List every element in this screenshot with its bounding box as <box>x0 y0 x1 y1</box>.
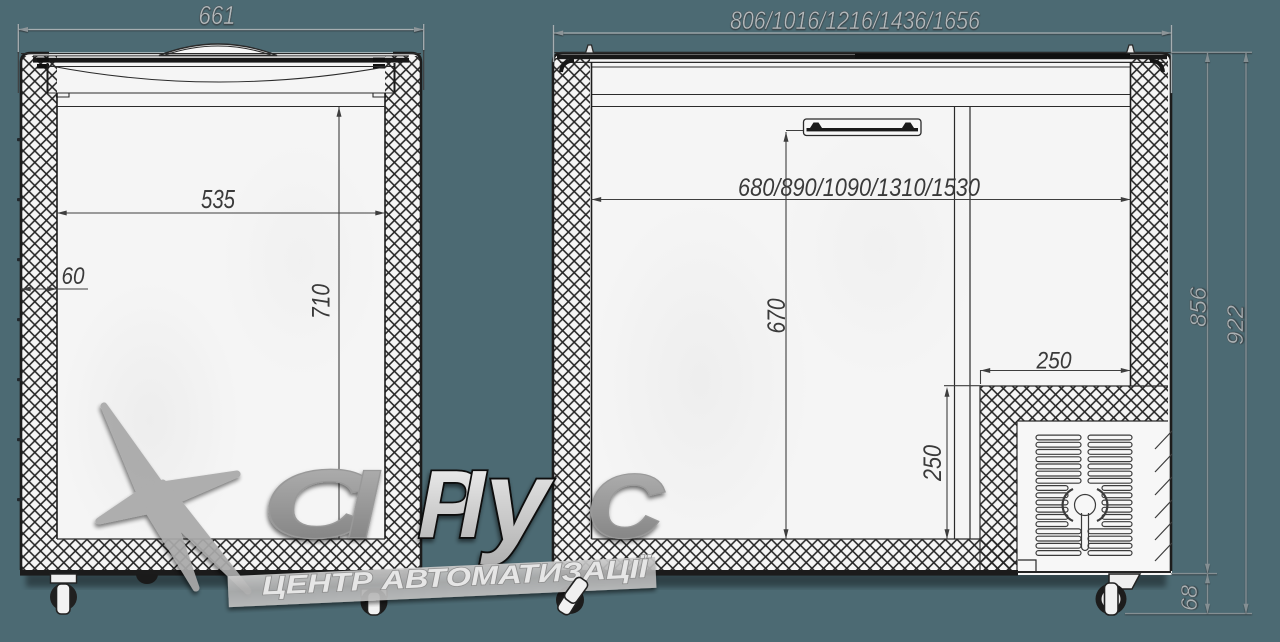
svg-text:С: С <box>587 457 665 557</box>
svg-text:661: 661 <box>199 0 236 30</box>
svg-text:250: 250 <box>1036 348 1072 375</box>
svg-text:710: 710 <box>308 284 336 319</box>
svg-text:І: І <box>459 451 487 558</box>
svg-text:250: 250 <box>919 445 947 482</box>
svg-text:680/890/1090/1310/1530: 680/890/1090/1310/1530 <box>738 174 980 202</box>
svg-text:806/1016/1216/1436/1656: 806/1016/1216/1436/1656 <box>730 7 980 35</box>
svg-text:у: у <box>480 436 554 566</box>
svg-text:68: 68 <box>1176 585 1202 611</box>
svg-text:856: 856 <box>1185 287 1211 327</box>
svg-text:60: 60 <box>62 263 86 290</box>
svg-text:535: 535 <box>201 184 235 214</box>
svg-text:922: 922 <box>1222 305 1248 345</box>
svg-text:І: І <box>348 451 381 558</box>
svg-text:670: 670 <box>763 298 791 333</box>
